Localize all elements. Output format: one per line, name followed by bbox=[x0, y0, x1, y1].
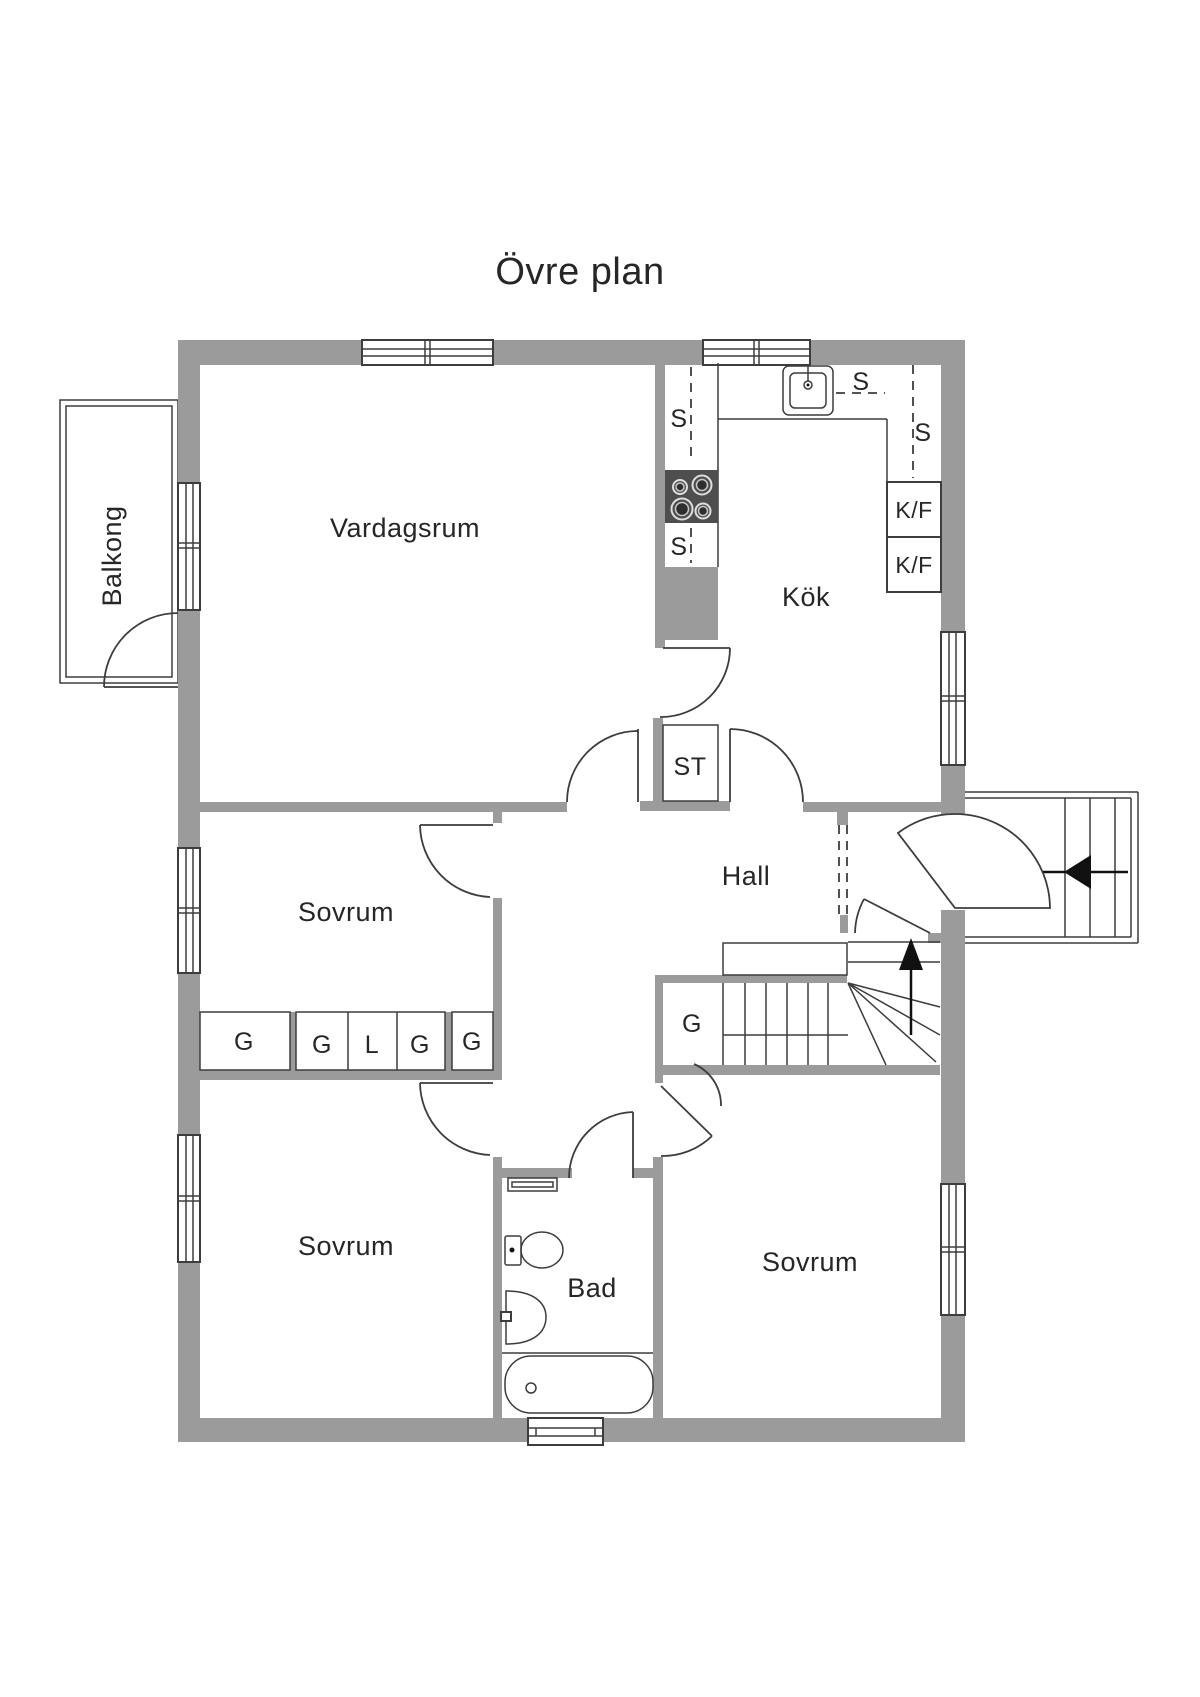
stove-icon bbox=[665, 470, 718, 523]
floor-plan-svg: Övre plan bbox=[0, 0, 1200, 1697]
window-left-balcony bbox=[178, 483, 200, 610]
toilet-icon bbox=[505, 1232, 563, 1268]
interior-stairs bbox=[723, 938, 940, 1065]
window-bottom-bath bbox=[528, 1418, 603, 1445]
room-label-bedroom2: Sovrum bbox=[298, 1231, 394, 1261]
balcony-door bbox=[104, 613, 178, 687]
room-label-hall: Hall bbox=[722, 861, 771, 891]
label-pantry-upper: S bbox=[670, 405, 687, 433]
label-wardrobe-2: G bbox=[312, 1031, 332, 1059]
label-wardrobe-4: G bbox=[462, 1028, 482, 1056]
label-wardrobe-1: G bbox=[234, 1028, 254, 1056]
room-label-bedroom1: Sovrum bbox=[298, 897, 394, 927]
label-fridge-freezer-2: K/F bbox=[895, 552, 932, 578]
closets bbox=[200, 725, 718, 1070]
label-linen-closet: L bbox=[365, 1031, 379, 1059]
unit-labels: ST S S S S K/F K/F G G L G G G bbox=[234, 368, 933, 1059]
label-cleaning-closet: ST bbox=[674, 753, 707, 781]
bathroom-door bbox=[569, 1112, 633, 1178]
label-pantry-lower: S bbox=[670, 533, 687, 561]
window-right-bedroom3 bbox=[941, 1184, 965, 1315]
stairs-up-arrow bbox=[899, 938, 923, 1035]
washbasin-icon bbox=[501, 1291, 546, 1344]
room-label-living-room: Vardagsrum bbox=[330, 513, 480, 543]
kitchen-hall-door bbox=[730, 729, 803, 802]
floor-plan-page: Övre plan bbox=[0, 0, 1200, 1697]
shelf-icon bbox=[508, 1178, 557, 1191]
bedroom2-door bbox=[420, 1083, 493, 1155]
room-label-bedroom3: Sovrum bbox=[762, 1247, 858, 1277]
label-wardrobe-3: G bbox=[410, 1031, 430, 1059]
room-labels: Balkong Vardagsrum Kök Hall Sovrum Sovru… bbox=[97, 505, 858, 1303]
room-label-balcony: Balkong bbox=[97, 505, 127, 606]
window-top-kitchen bbox=[703, 340, 810, 365]
bedroom1-door bbox=[420, 825, 493, 897]
bedroom3-door bbox=[661, 1086, 712, 1156]
bathtub-icon bbox=[502, 1353, 653, 1413]
room-label-bathroom: Bad bbox=[567, 1273, 617, 1303]
entry-door bbox=[898, 814, 1050, 908]
label-fridge-freezer-1: K/F bbox=[895, 497, 932, 523]
stair-opening-dashed-line bbox=[839, 825, 847, 915]
doors bbox=[104, 613, 1050, 1178]
window-left-bedroom1 bbox=[178, 848, 200, 973]
window-top-living bbox=[362, 340, 493, 365]
living-room-door bbox=[567, 729, 638, 802]
room-label-kitchen: Kök bbox=[782, 582, 830, 612]
stair-landing bbox=[723, 943, 847, 975]
label-stair-wardrobe: G bbox=[682, 1010, 702, 1038]
window-right-kitchen bbox=[941, 632, 965, 765]
page-title: Övre plan bbox=[495, 251, 664, 293]
kitchen-sink-icon bbox=[783, 366, 833, 415]
window-left-bedroom2 bbox=[178, 1135, 200, 1262]
label-counter-side: S bbox=[914, 419, 931, 447]
living-kitchen-door bbox=[660, 648, 730, 717]
stair-top-door bbox=[855, 899, 930, 933]
label-counter-wall: S bbox=[852, 368, 869, 396]
